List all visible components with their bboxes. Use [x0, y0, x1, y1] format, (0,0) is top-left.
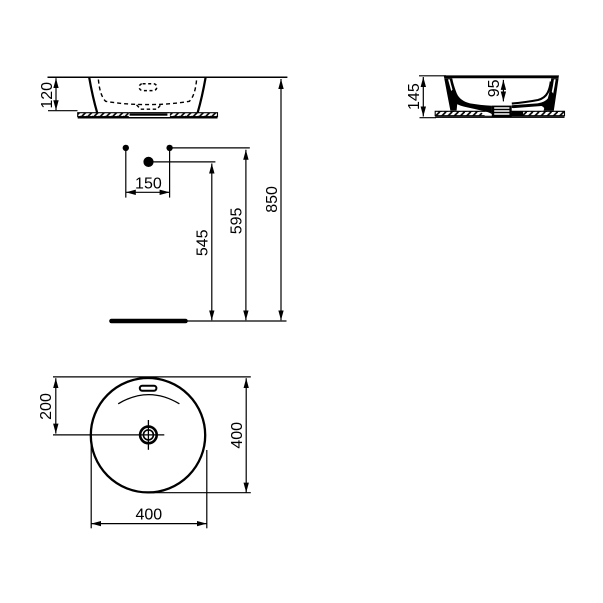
- svg-text:545: 545: [195, 229, 212, 256]
- svg-text:150: 150: [135, 175, 162, 192]
- svg-text:595: 595: [229, 207, 246, 234]
- svg-text:120: 120: [39, 82, 56, 109]
- svg-text:400: 400: [229, 422, 246, 449]
- svg-text:400: 400: [135, 506, 162, 523]
- svg-text:145: 145: [406, 83, 423, 110]
- svg-text:95: 95: [486, 79, 503, 97]
- svg-text:850: 850: [264, 186, 281, 213]
- svg-text:200: 200: [38, 393, 55, 420]
